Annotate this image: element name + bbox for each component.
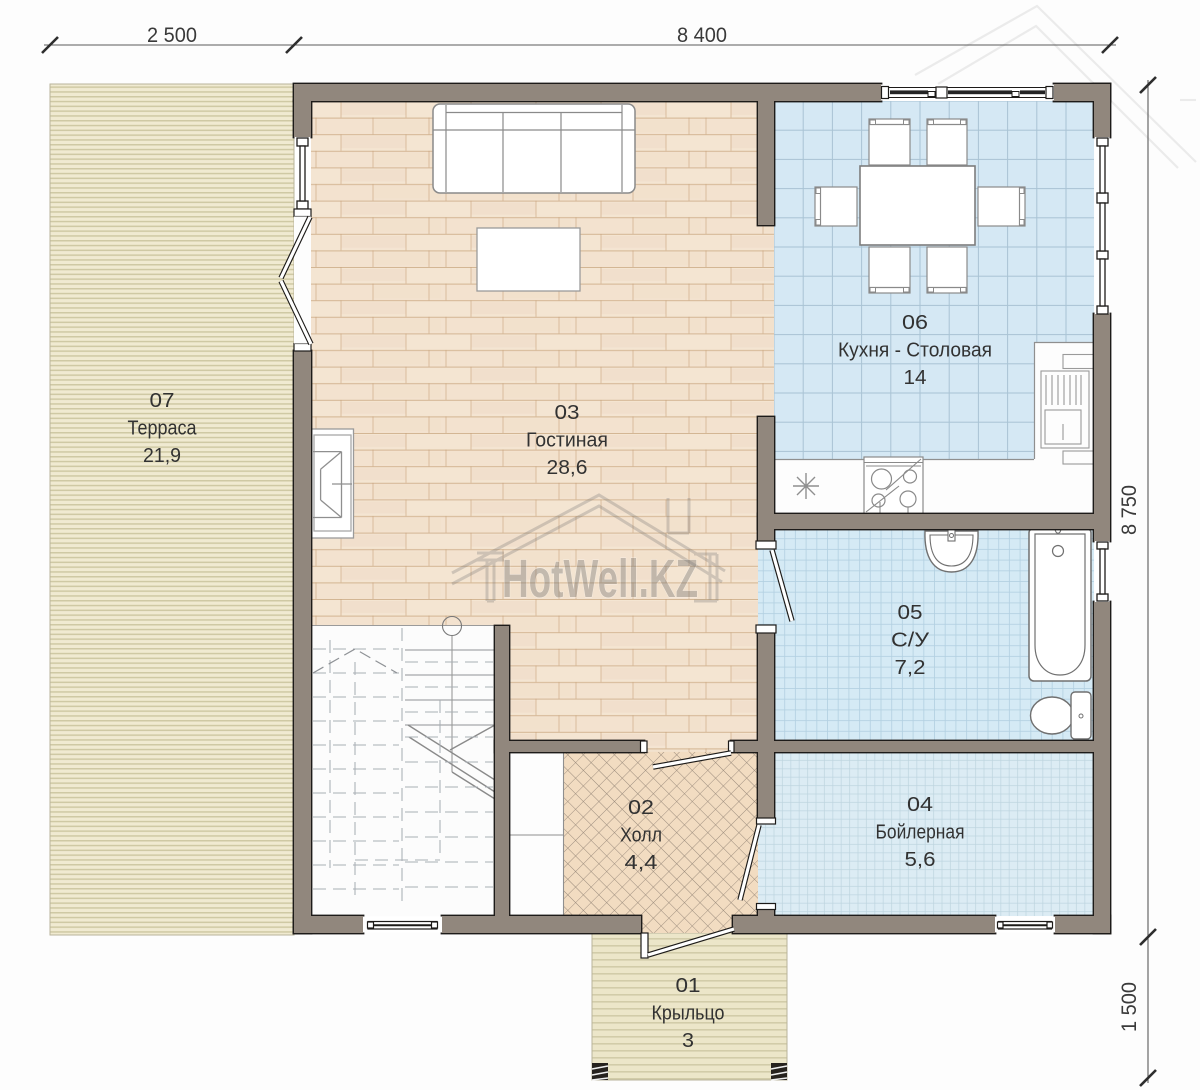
svg-text:Терраса: Терраса [128,418,198,440]
svg-text:28,6: 28,6 [547,457,588,479]
svg-text:Холл: Холл [620,825,662,847]
svg-text:2 500: 2 500 [147,24,197,47]
svg-text:03: 03 [555,402,580,424]
svg-text:14: 14 [904,367,927,389]
svg-text:05: 05 [898,602,923,624]
svg-text:5,6: 5,6 [905,849,936,871]
svg-text:07: 07 [150,390,175,412]
svg-text:8 400: 8 400 [677,24,727,47]
svg-text:HotWell.KZ: HotWell.KZ [502,549,698,609]
svg-text:Гостиная: Гостиная [526,430,608,452]
svg-text:06: 06 [902,312,928,334]
svg-text:Крыльцо: Крыльцо [652,1003,725,1025]
svg-text:С/У: С/У [891,630,929,652]
svg-text:3: 3 [682,1030,694,1052]
svg-text:Бойлерная: Бойлерная [876,822,965,844]
svg-text:04: 04 [907,794,933,816]
svg-text:01: 01 [676,975,701,997]
svg-text:7,2: 7,2 [895,657,926,679]
svg-text:1 500: 1 500 [1118,982,1141,1032]
svg-text:02: 02 [628,797,654,819]
svg-text:Кухня - Столовая: Кухня - Столовая [838,340,992,362]
svg-text:4,4: 4,4 [625,852,658,874]
svg-text:21,9: 21,9 [143,445,181,467]
svg-text:8 750: 8 750 [1118,485,1141,535]
